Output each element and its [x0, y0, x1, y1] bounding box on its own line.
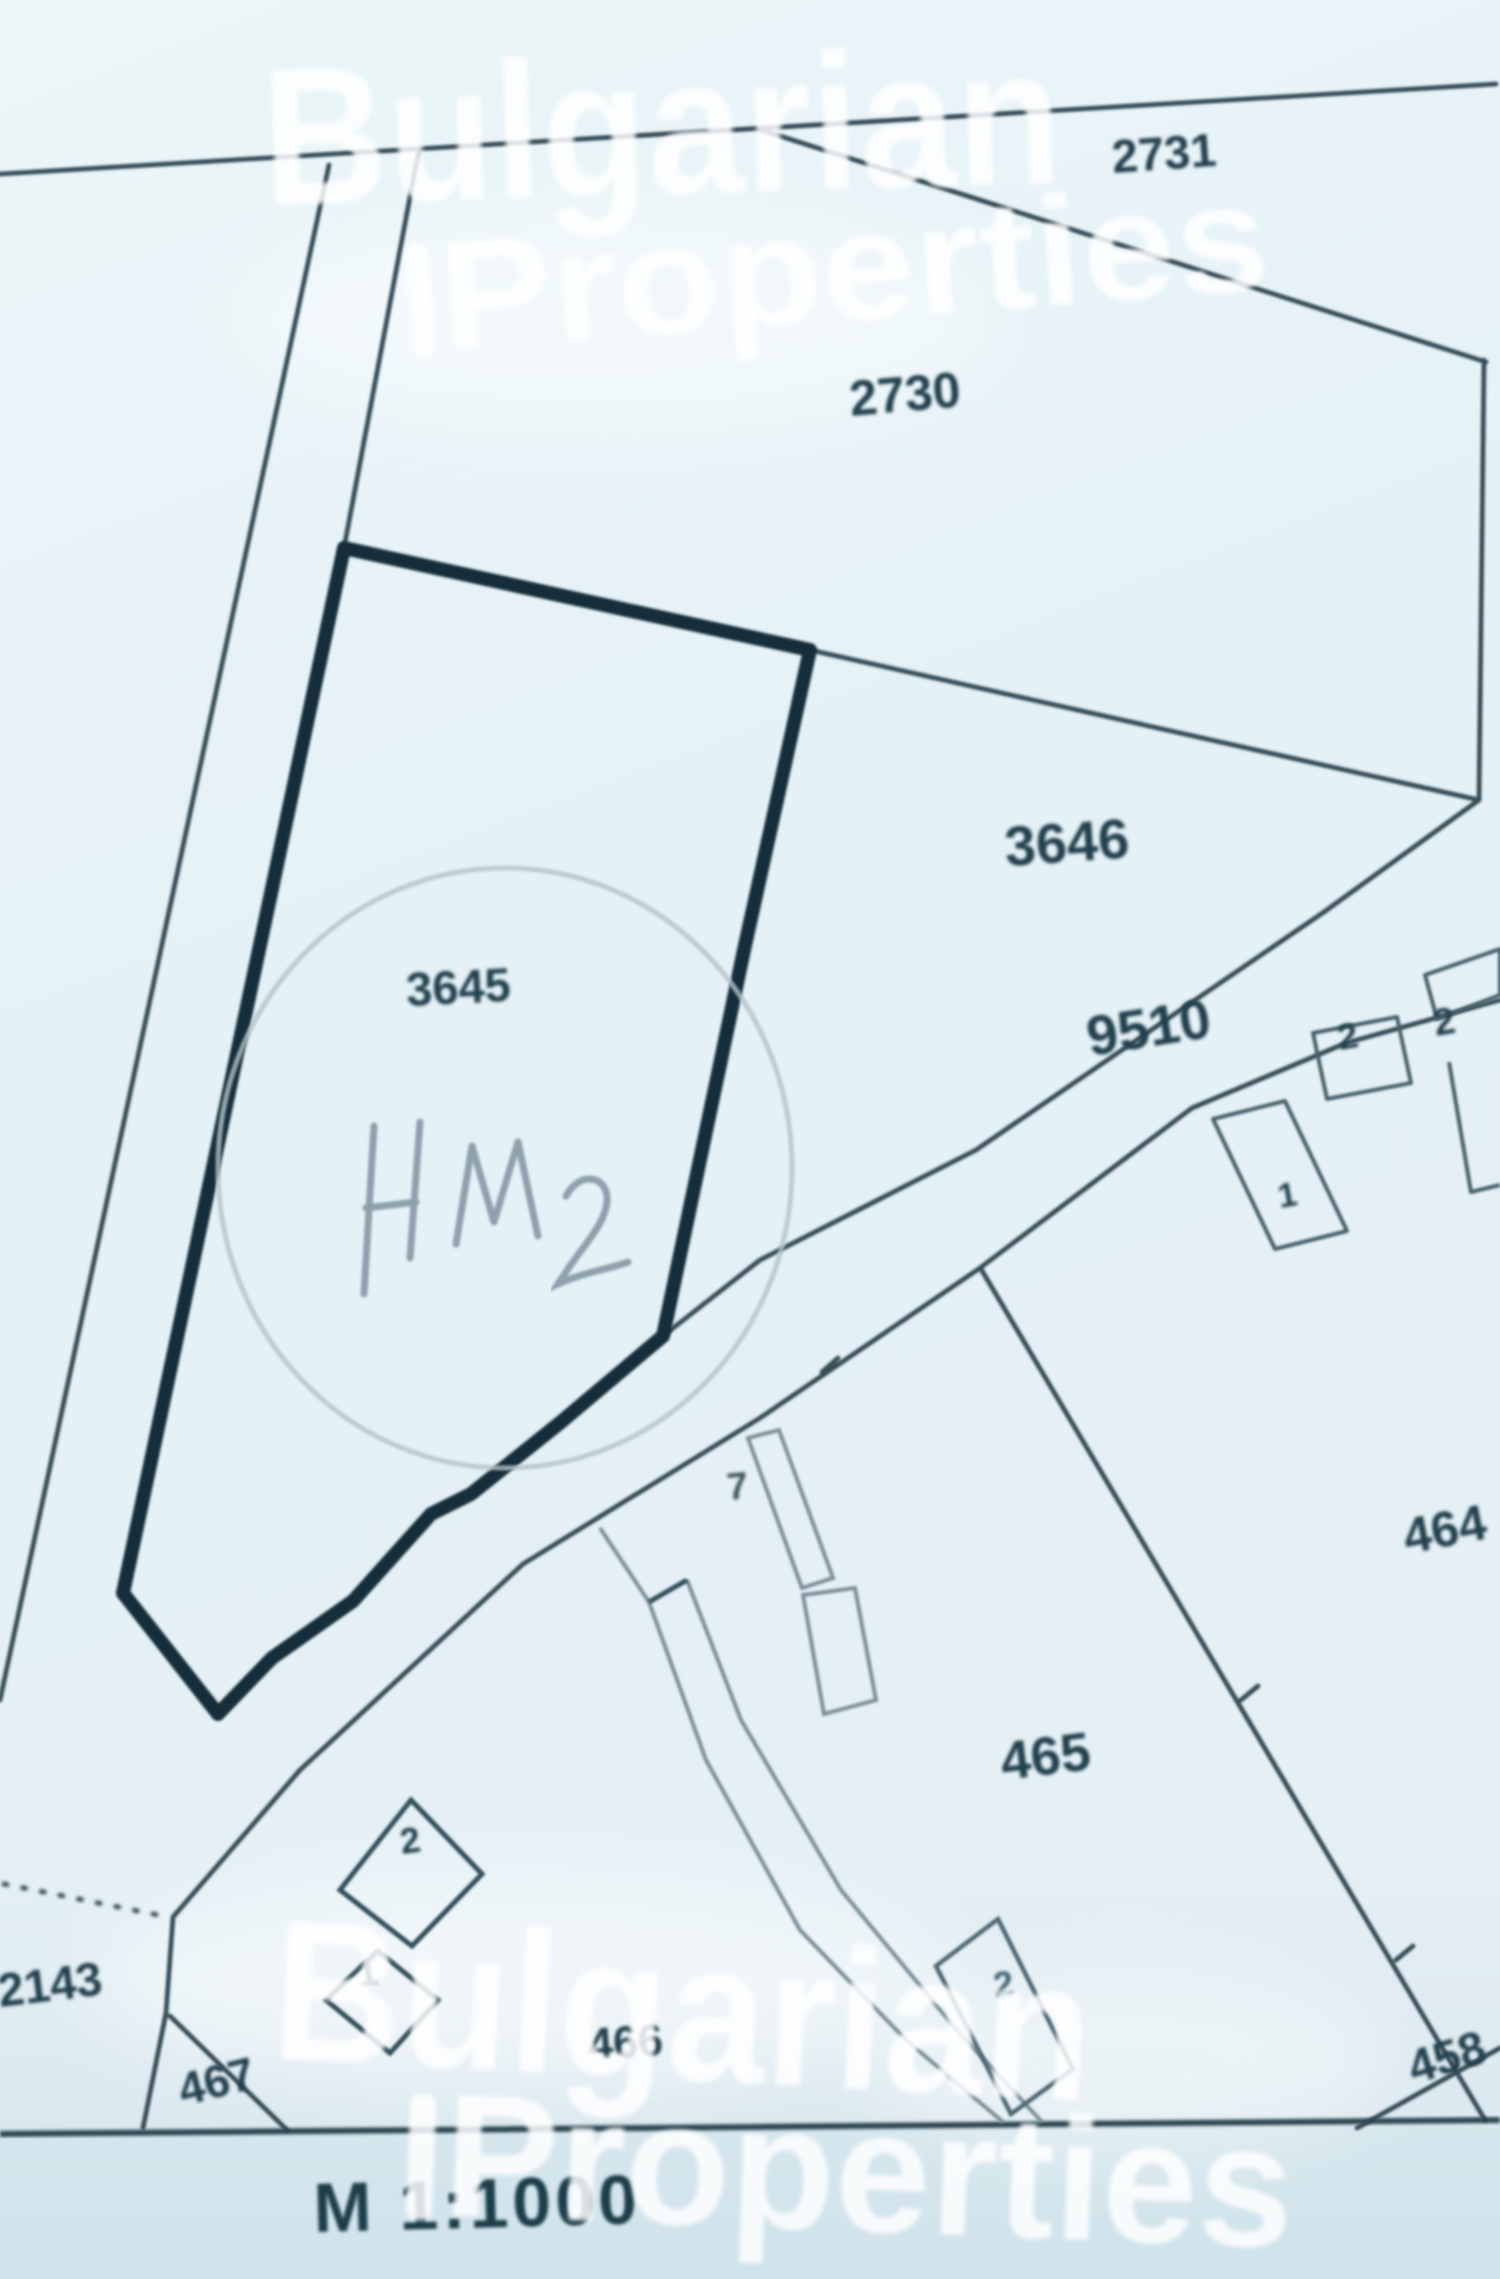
svg-text:7: 7 — [725, 1465, 750, 1509]
svg-text:Properties: Properties — [441, 2058, 1298, 2279]
svg-text:465: 465 — [997, 1721, 1094, 1792]
svg-text:2730: 2730 — [847, 361, 963, 426]
svg-text:3646: 3646 — [1002, 806, 1131, 878]
svg-text:3645: 3645 — [405, 958, 512, 1016]
